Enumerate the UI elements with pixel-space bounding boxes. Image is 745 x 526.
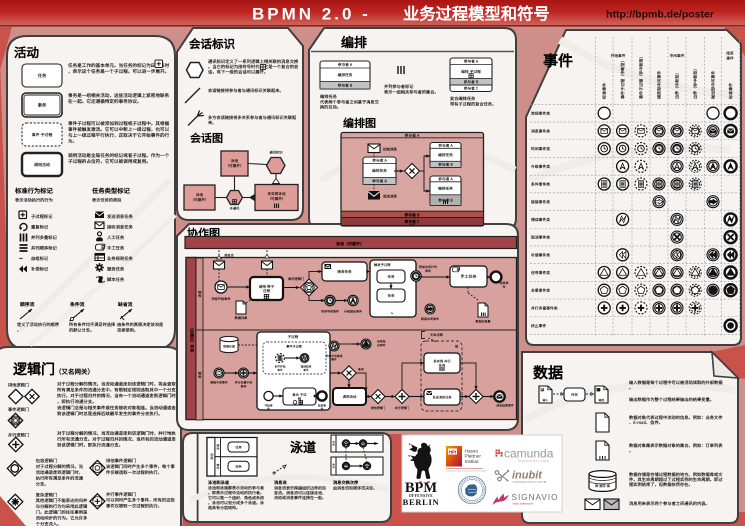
svg-text:integrating your business and: integrating your business and IT ■ bbox=[513, 481, 547, 484]
svg-text:BPMN 2.0 -: BPMN 2.0 - bbox=[252, 5, 371, 24]
svg-text:IT Systems Engineering | Unive: IT Systems Engineering | Universitat Pot… bbox=[446, 469, 487, 472]
svg-text:Plattner: Plattner bbox=[465, 454, 482, 460]
svg-text:HPI: HPI bbox=[449, 449, 456, 454]
svg-text:Institut: Institut bbox=[465, 459, 480, 465]
svg-text:The business process company: The business process company bbox=[518, 459, 550, 462]
svg-text:http://bpmb.de/poster: http://bpmb.de/poster bbox=[606, 9, 714, 21]
svg-text:Hasso: Hasso bbox=[465, 449, 479, 455]
svg-text:inubit: inubit bbox=[512, 470, 543, 482]
svg-text:camunda: camunda bbox=[504, 447, 554, 461]
svg-text:simply professional: simply professional bbox=[513, 503, 534, 506]
svg-text:BERLIN: BERLIN bbox=[403, 497, 440, 507]
svg-text:SIGNAVIO: SIGNAVIO bbox=[512, 493, 559, 502]
